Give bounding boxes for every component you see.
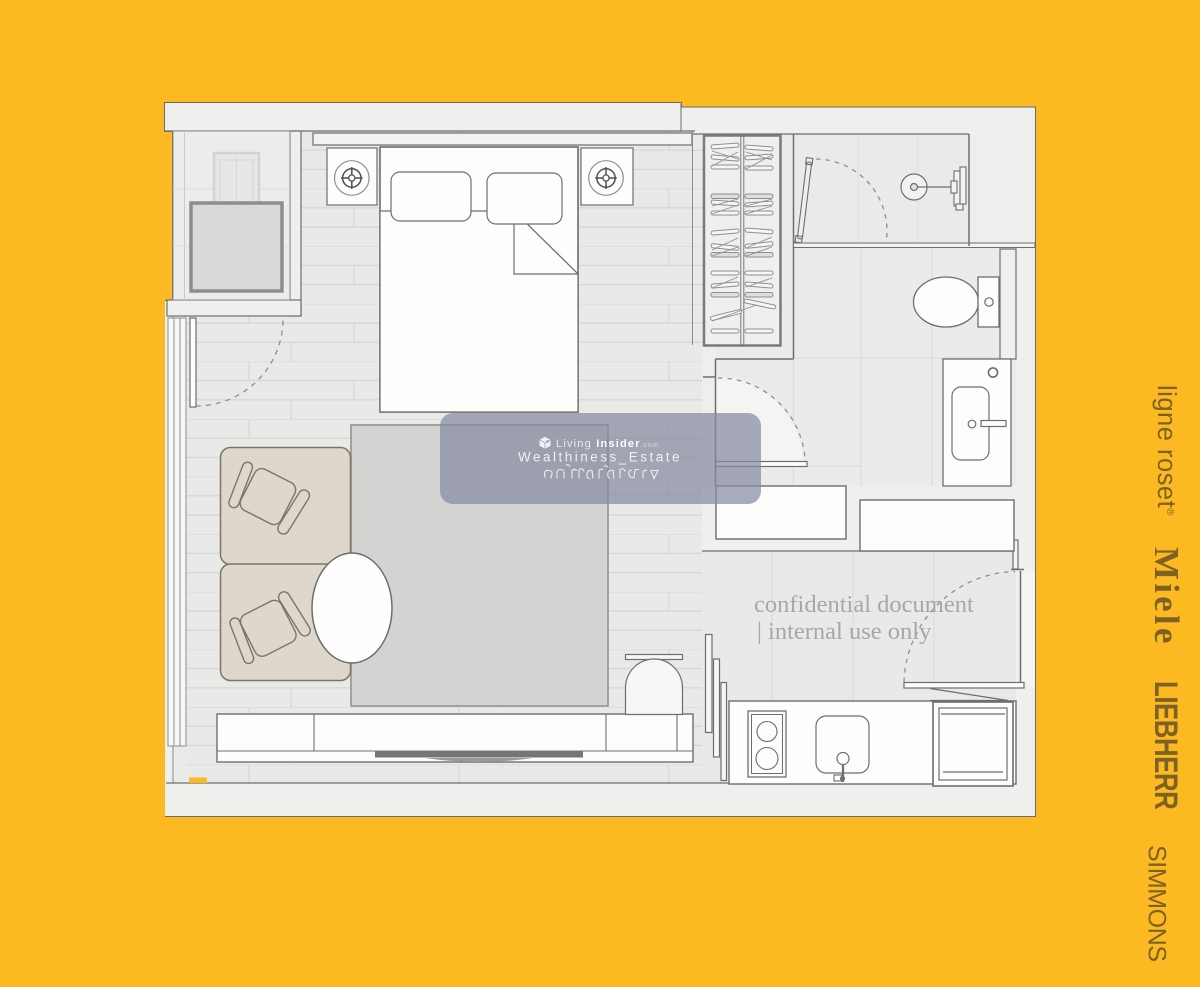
svg-text:confidential document: confidential document xyxy=(754,591,974,618)
svg-text:| internal use only: | internal use only xyxy=(757,618,932,645)
svg-text:SIMMONS: SIMMONS xyxy=(1143,845,1171,962)
svg-text:Wealthiness_Estate: Wealthiness_Estate xyxy=(518,450,682,465)
svg-text:LIEBHERR: LIEBHERR xyxy=(1147,681,1184,810)
svg-text:ligne roset®: ligne roset® xyxy=(1152,385,1180,516)
svg-text:Miele: Miele xyxy=(1147,547,1186,647)
